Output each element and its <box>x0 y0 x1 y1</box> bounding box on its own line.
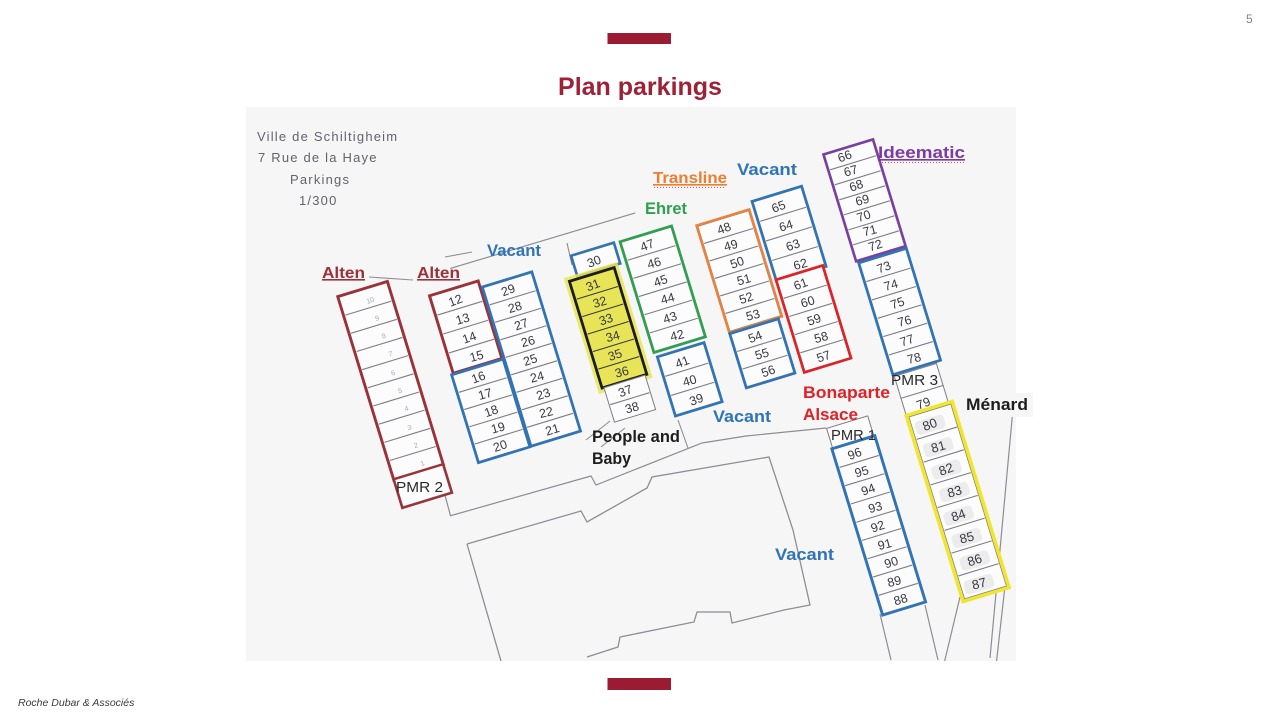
svg-text:PMR 1: PMR 1 <box>831 427 876 444</box>
svg-text:Vacant: Vacant <box>737 161 798 179</box>
svg-text:Transline: Transline <box>653 170 727 187</box>
svg-text:PMR 2: PMR 2 <box>396 479 443 496</box>
svg-text:Vacant: Vacant <box>487 242 542 260</box>
svg-text:People and: People and <box>592 427 680 446</box>
svg-text:Ville de Schiltigheim: Ville de Schiltigheim <box>257 129 398 144</box>
svg-text:Plan parkings: Plan parkings <box>558 73 722 101</box>
svg-text:Ménard: Ménard <box>966 395 1028 414</box>
svg-text:Alten: Alten <box>322 265 365 282</box>
svg-text:5: 5 <box>1246 12 1253 26</box>
svg-text:Alten: Alten <box>417 265 460 282</box>
svg-text:Vacant: Vacant <box>713 408 772 426</box>
svg-text:7 Rue de la Haye: 7 Rue de la Haye <box>258 150 378 165</box>
svg-text:Parkings: Parkings <box>290 172 350 187</box>
svg-text:Ideematic: Ideematic <box>878 144 965 162</box>
svg-text:Alsace: Alsace <box>803 406 858 424</box>
svg-text:Roche Dubar & Associés: Roche Dubar & Associés <box>18 697 135 709</box>
svg-text:Ehret: Ehret <box>645 200 687 218</box>
svg-text:Bonaparte: Bonaparte <box>803 384 890 402</box>
svg-text:PMR 3: PMR 3 <box>891 372 938 389</box>
svg-text:Vacant: Vacant <box>775 546 835 564</box>
svg-text:Baby: Baby <box>592 449 632 468</box>
svg-text:1/300: 1/300 <box>299 193 338 208</box>
